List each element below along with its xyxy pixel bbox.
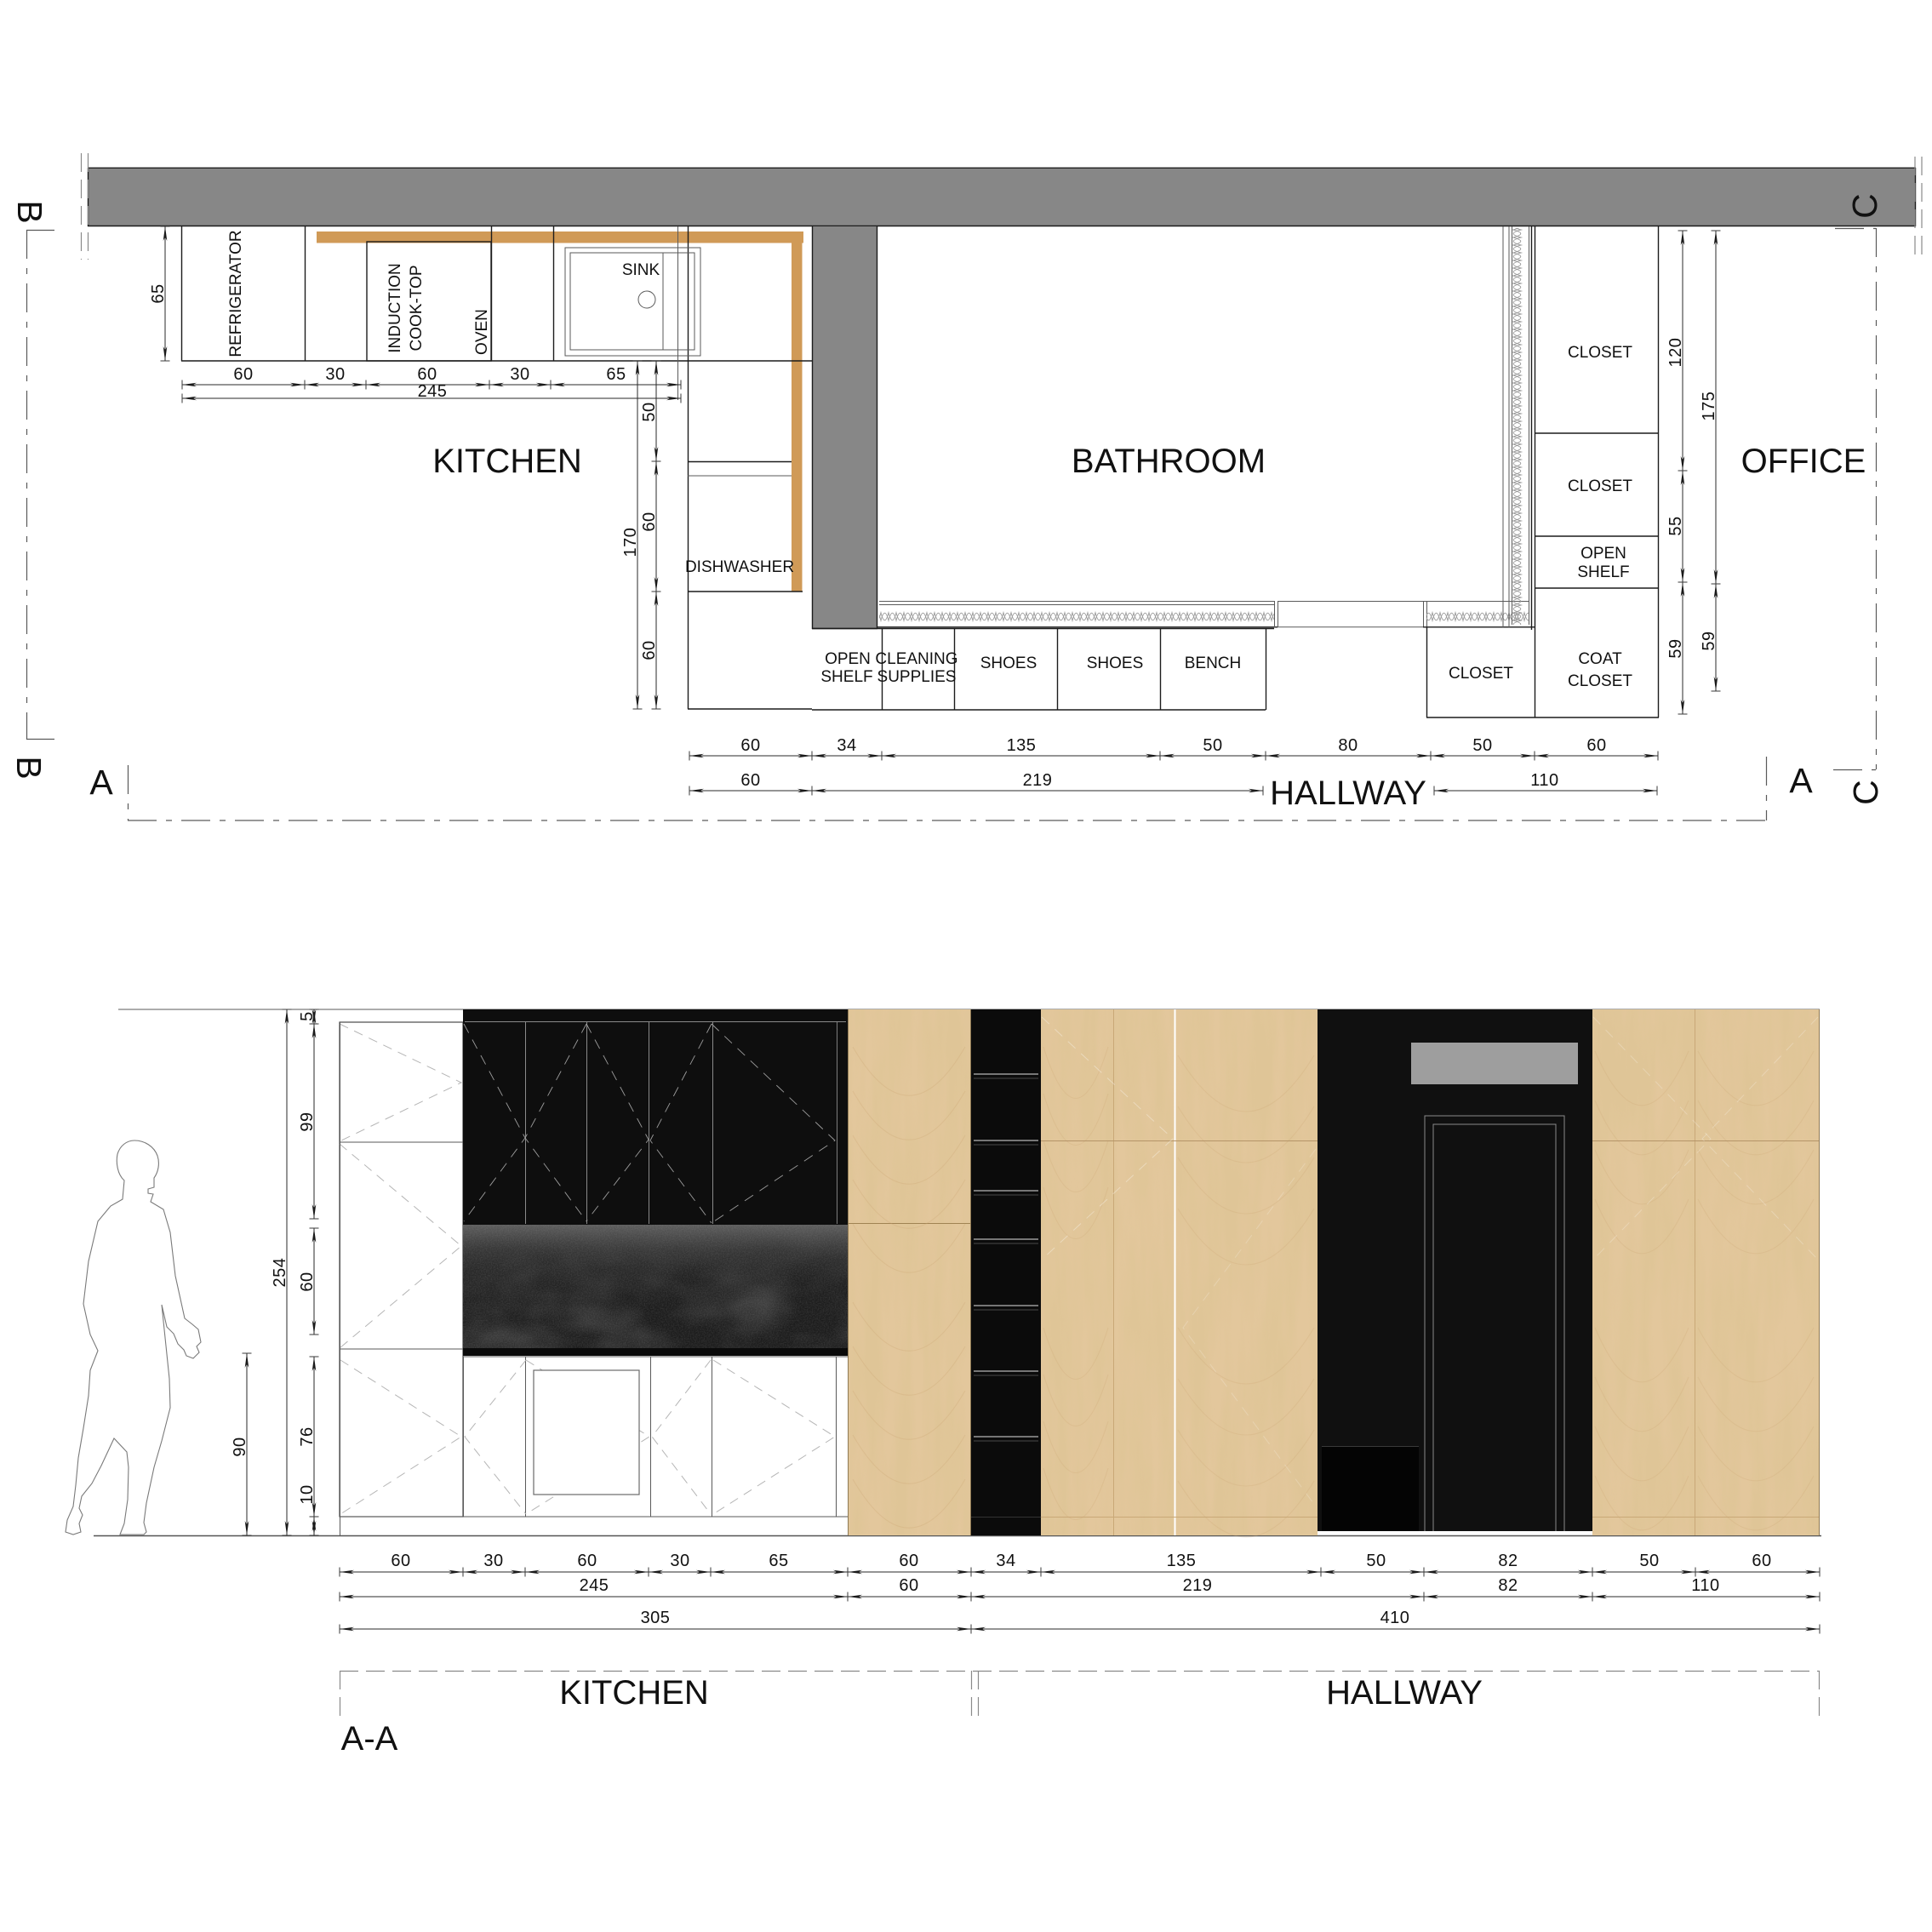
svg-text:135: 135 (1007, 736, 1037, 755)
svg-text:30: 30 (483, 1552, 503, 1570)
svg-text:BENCH: BENCH (1185, 654, 1242, 672)
svg-text:CLOSET: CLOSET (1568, 672, 1632, 690)
svg-text:65: 65 (606, 365, 626, 384)
svg-text:60: 60 (740, 771, 760, 790)
svg-text:245: 245 (580, 1576, 609, 1595)
svg-text:60: 60 (899, 1552, 918, 1570)
svg-text:OFFICE: OFFICE (1741, 443, 1866, 480)
svg-text:60: 60 (740, 736, 760, 755)
svg-text:60: 60 (577, 1552, 597, 1570)
svg-text:30: 30 (510, 365, 529, 384)
svg-text:50: 50 (1203, 736, 1222, 755)
svg-text:110: 110 (1691, 1576, 1719, 1595)
svg-text:245: 245 (418, 382, 448, 401)
svg-text:SHELF: SHELF (820, 668, 872, 686)
svg-text:A: A (1789, 761, 1813, 800)
svg-text:CLOSET: CLOSET (1568, 477, 1632, 495)
svg-text:65: 65 (769, 1552, 788, 1570)
svg-text:170: 170 (621, 528, 640, 557)
svg-text:135: 135 (1167, 1552, 1197, 1570)
svg-text:A: A (89, 763, 113, 802)
svg-text:60: 60 (1752, 1552, 1771, 1570)
svg-text:B: B (10, 200, 49, 223)
svg-text:50: 50 (1472, 736, 1492, 755)
svg-text:SHELF: SHELF (1577, 563, 1629, 581)
svg-text:OVEN: OVEN (473, 309, 491, 355)
svg-text:59: 59 (1700, 631, 1718, 650)
svg-text:KITCHEN: KITCHEN (559, 1674, 709, 1712)
svg-text:60: 60 (417, 365, 437, 384)
svg-text:50: 50 (640, 402, 659, 421)
svg-text:60: 60 (233, 365, 253, 384)
svg-text:219: 219 (1023, 771, 1053, 790)
svg-text:HALLWAY: HALLWAY (1326, 1674, 1483, 1712)
svg-text:DISHWASHER: DISHWASHER (685, 558, 794, 576)
svg-text:INDUCTION: INDUCTION (386, 263, 404, 353)
svg-text:CLOSET: CLOSET (1449, 665, 1513, 683)
svg-text:CLEANING: CLEANING (875, 650, 957, 668)
svg-text:30: 30 (325, 365, 345, 384)
svg-text:C: C (1845, 193, 1884, 219)
svg-text:254: 254 (271, 1258, 289, 1288)
svg-text:OPEN: OPEN (825, 650, 871, 668)
svg-text:50: 50 (1639, 1552, 1659, 1570)
svg-text:82: 82 (1498, 1552, 1518, 1570)
svg-text:60: 60 (640, 512, 659, 531)
svg-text:175: 175 (1700, 392, 1718, 421)
svg-text:410: 410 (1380, 1609, 1410, 1627)
svg-text:SUPPLIES: SUPPLIES (877, 668, 957, 686)
svg-text:B: B (9, 756, 49, 779)
svg-text:SHOES: SHOES (1087, 654, 1144, 672)
svg-text:KITCHEN: KITCHEN (432, 443, 582, 480)
svg-text:60: 60 (899, 1576, 918, 1595)
svg-text:10: 10 (298, 1484, 317, 1504)
svg-text:CLOSET: CLOSET (1568, 344, 1632, 362)
svg-text:219: 219 (1183, 1576, 1213, 1595)
svg-text:OPEN: OPEN (1580, 545, 1626, 563)
svg-text:5: 5 (298, 1011, 317, 1021)
svg-text:60: 60 (1586, 736, 1606, 755)
svg-text:65: 65 (149, 283, 168, 303)
svg-text:34: 34 (837, 736, 856, 755)
svg-text:34: 34 (996, 1552, 1015, 1570)
svg-text:30: 30 (670, 1552, 689, 1570)
svg-text:60: 60 (298, 1272, 317, 1291)
svg-text:COAT: COAT (1578, 650, 1622, 668)
svg-text:BATHROOM: BATHROOM (1072, 443, 1266, 480)
svg-text:120: 120 (1666, 338, 1685, 368)
svg-text:110: 110 (1530, 771, 1558, 790)
svg-text:SHOES: SHOES (980, 654, 1037, 672)
svg-text:C: C (1846, 780, 1885, 805)
svg-text:305: 305 (641, 1609, 671, 1627)
svg-text:50: 50 (1366, 1552, 1386, 1570)
svg-text:COOK-TOP: COOK-TOP (408, 266, 426, 352)
svg-text:82: 82 (1498, 1576, 1518, 1595)
svg-text:60: 60 (391, 1552, 410, 1570)
svg-text:60: 60 (640, 640, 659, 660)
svg-text:REFRIGERATOR: REFRIGERATOR (227, 230, 245, 357)
svg-text:76: 76 (298, 1426, 317, 1446)
svg-text:HALLWAY: HALLWAY (1270, 775, 1426, 812)
svg-text:59: 59 (1666, 638, 1685, 658)
svg-text:80: 80 (1338, 736, 1358, 755)
svg-text:SINK: SINK (622, 261, 660, 279)
svg-text:55: 55 (1666, 516, 1685, 535)
svg-text:99: 99 (298, 1112, 317, 1131)
svg-text:90: 90 (231, 1437, 249, 1456)
svg-text:A-A: A-A (341, 1720, 398, 1758)
